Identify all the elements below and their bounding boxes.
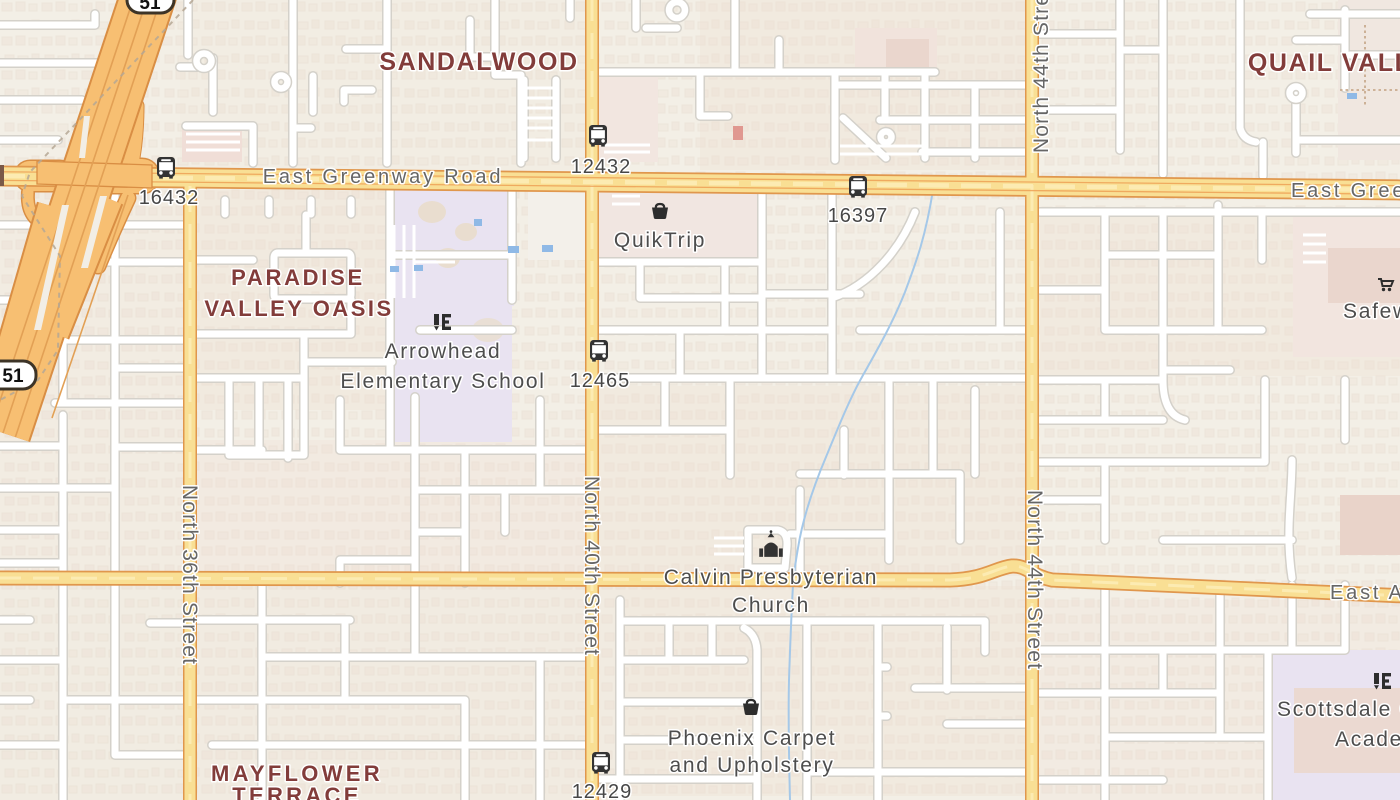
svg-text:QuikTrip: QuikTrip <box>614 229 706 252</box>
svg-text:VALLEY OASIS: VALLEY OASIS <box>204 296 393 321</box>
svg-text:Phoenix Carpet: Phoenix Carpet <box>668 727 837 750</box>
svg-text:SANDALWOOD: SANDALWOOD <box>379 48 578 76</box>
svg-text:Scottsdale Chr: Scottsdale Chr <box>1277 698 1400 721</box>
svg-text:51: 51 <box>2 366 24 387</box>
svg-text:East Greenway Road: East Greenway Road <box>263 166 504 188</box>
svg-text:Arrowhead: Arrowhead <box>385 340 502 363</box>
svg-text:16397: 16397 <box>828 205 889 227</box>
svg-text:North 44th Street: North 44th Street <box>1023 490 1046 670</box>
svg-text:North 44th Street: North 44th Street <box>1030 0 1053 153</box>
svg-text:East Acoma Drive: East Acoma Drive <box>1330 582 1400 604</box>
svg-text:and Upholstery: and Upholstery <box>669 754 834 777</box>
svg-text:12432: 12432 <box>571 156 632 178</box>
svg-text:Elementary School: Elementary School <box>340 370 545 393</box>
svg-text:Academy: Academy <box>1335 728 1400 751</box>
svg-text:Church: Church <box>732 594 810 617</box>
svg-text:TERRACE: TERRACE <box>232 783 361 800</box>
svg-text:Safeway: Safeway <box>1343 300 1400 323</box>
svg-text:Calvin Presbyterian: Calvin Presbyterian <box>664 566 878 589</box>
svg-text:12429: 12429 <box>572 781 633 800</box>
svg-text:12465: 12465 <box>570 370 631 392</box>
svg-text:PARADISE: PARADISE <box>231 265 365 290</box>
svg-text:51: 51 <box>139 0 161 14</box>
svg-text:North 40th Street: North 40th Street <box>580 476 603 656</box>
svg-text:QUAIL VALLEY: QUAIL VALLEY <box>1248 49 1400 77</box>
svg-text:North 36th Street: North 36th Street <box>178 485 201 665</box>
svg-text:16432: 16432 <box>139 187 200 209</box>
svg-text:East Greenway Road: East Greenway Road <box>1291 180 1400 202</box>
